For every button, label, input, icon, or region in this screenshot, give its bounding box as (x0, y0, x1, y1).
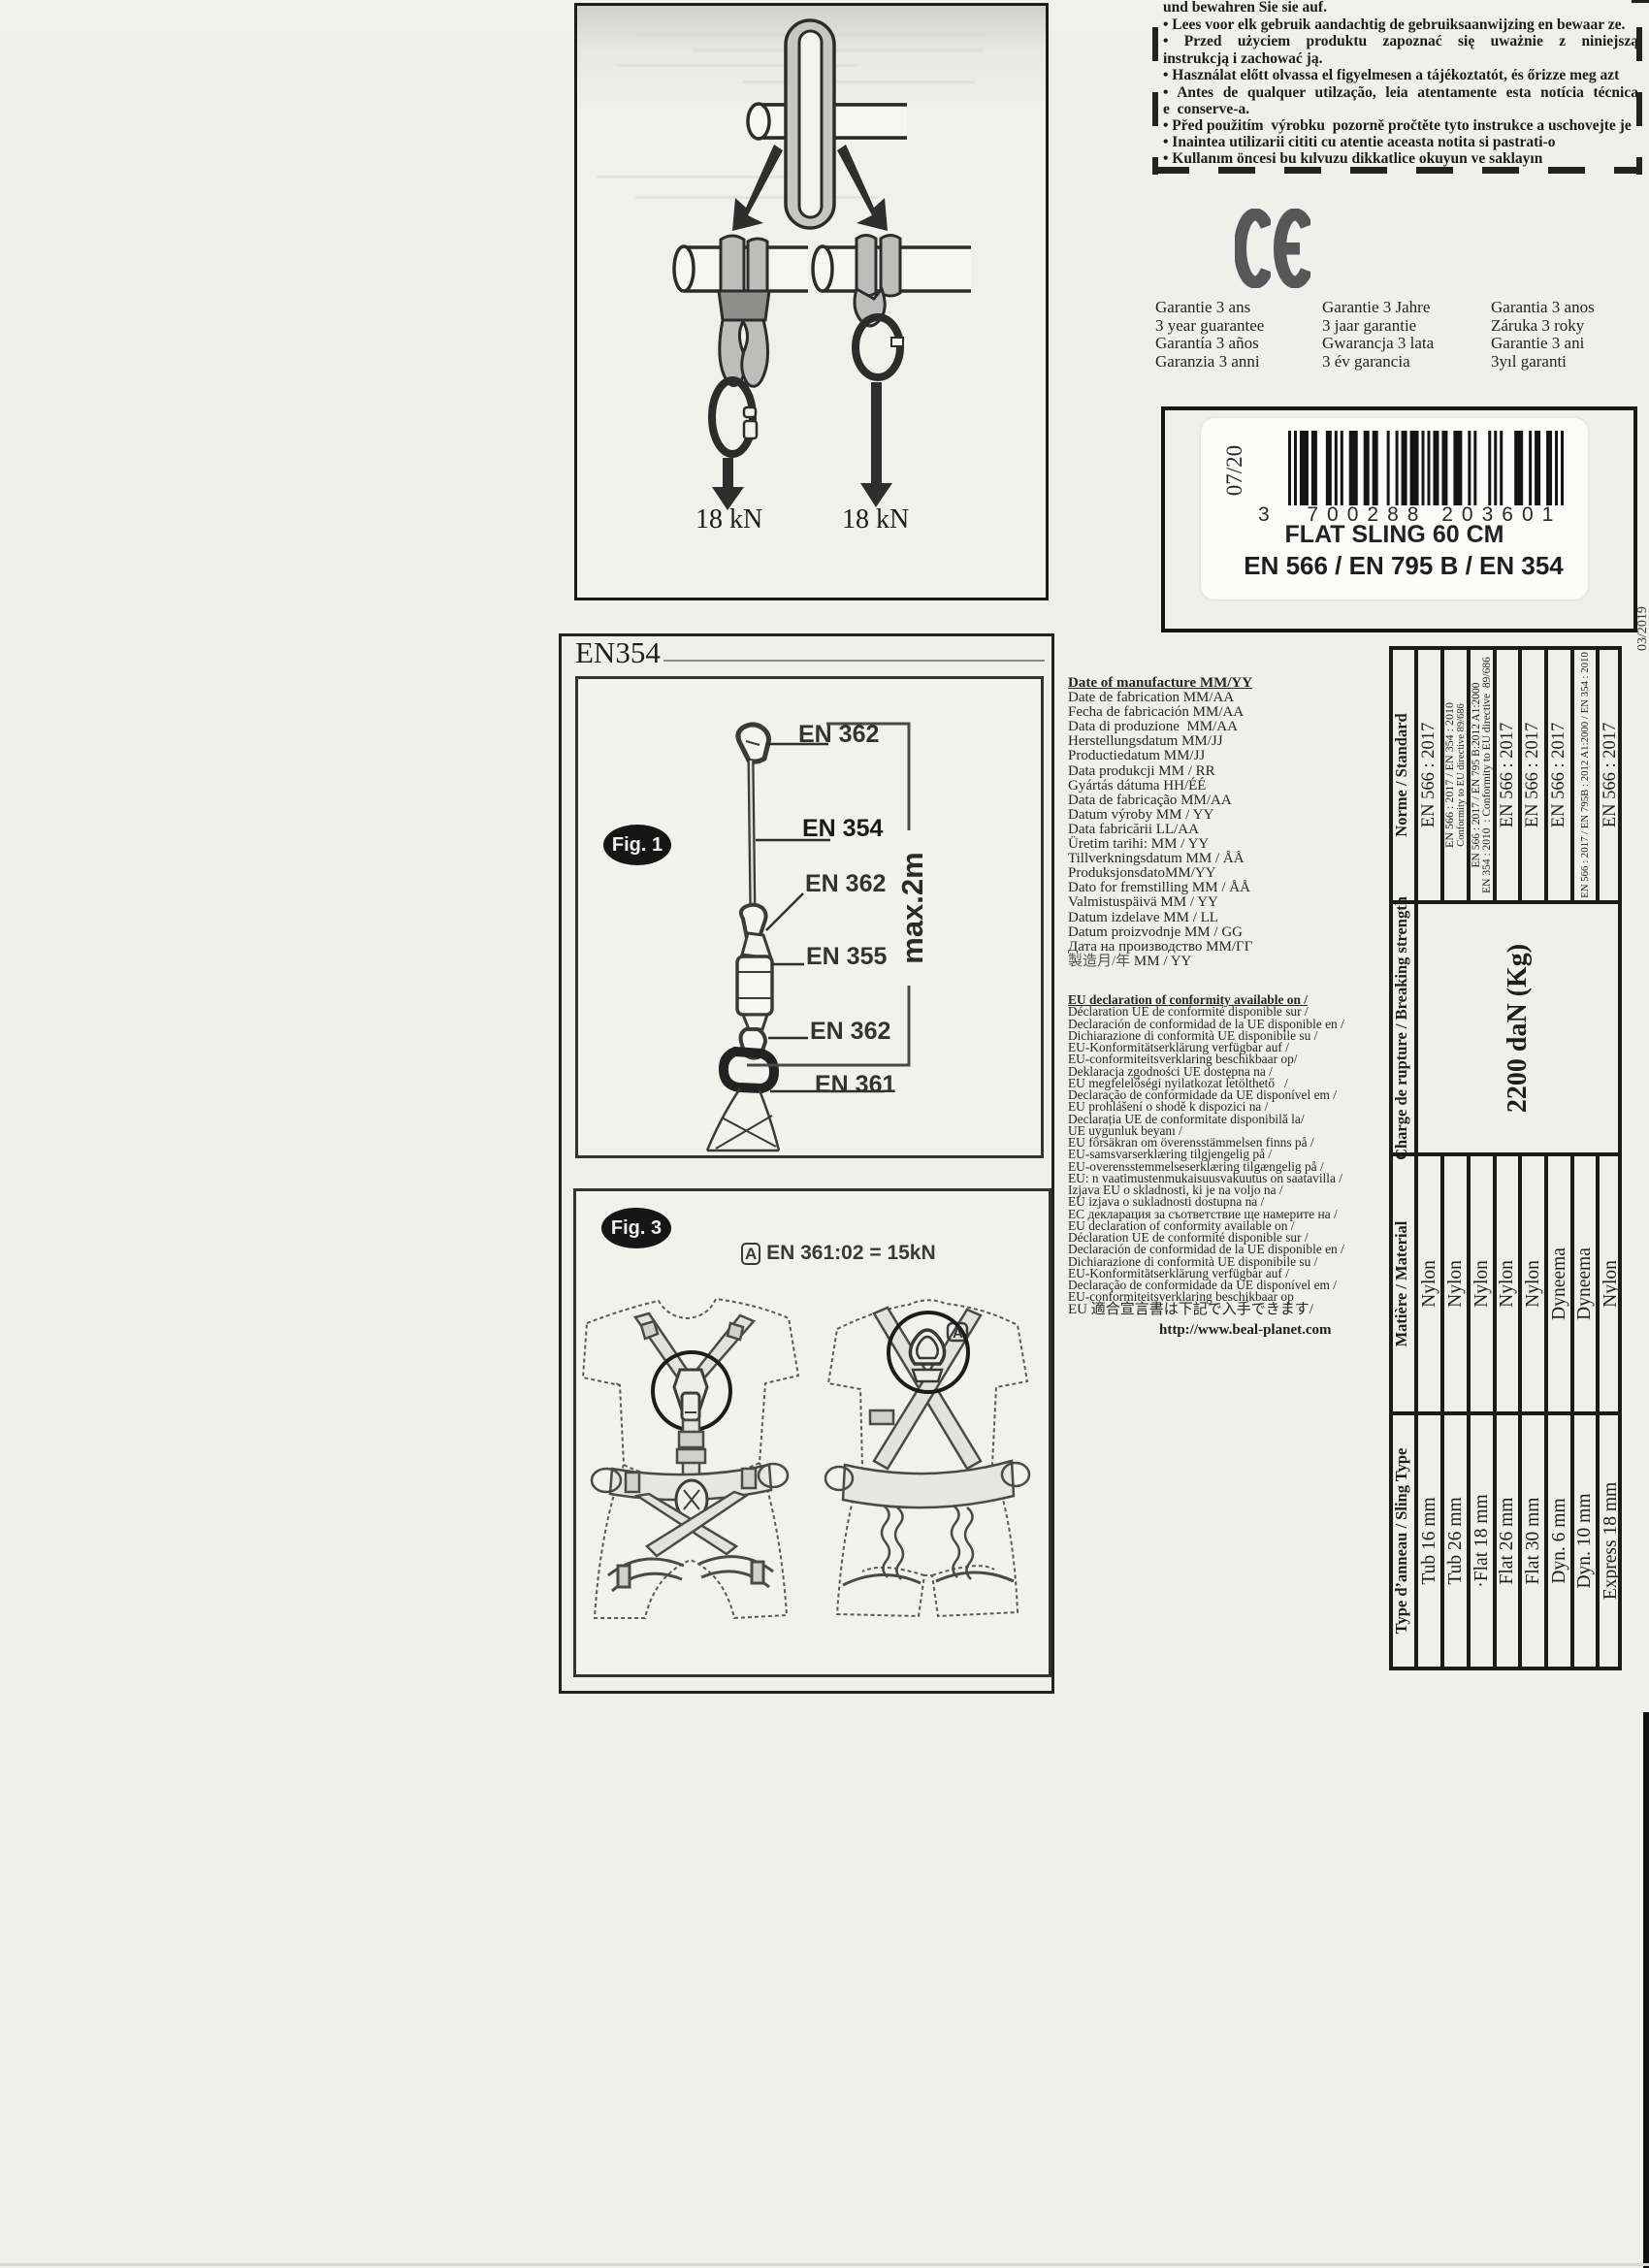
svg-text:18 kN: 18 kN (842, 504, 909, 535)
svg-text:18 kN: 18 kN (695, 504, 762, 535)
